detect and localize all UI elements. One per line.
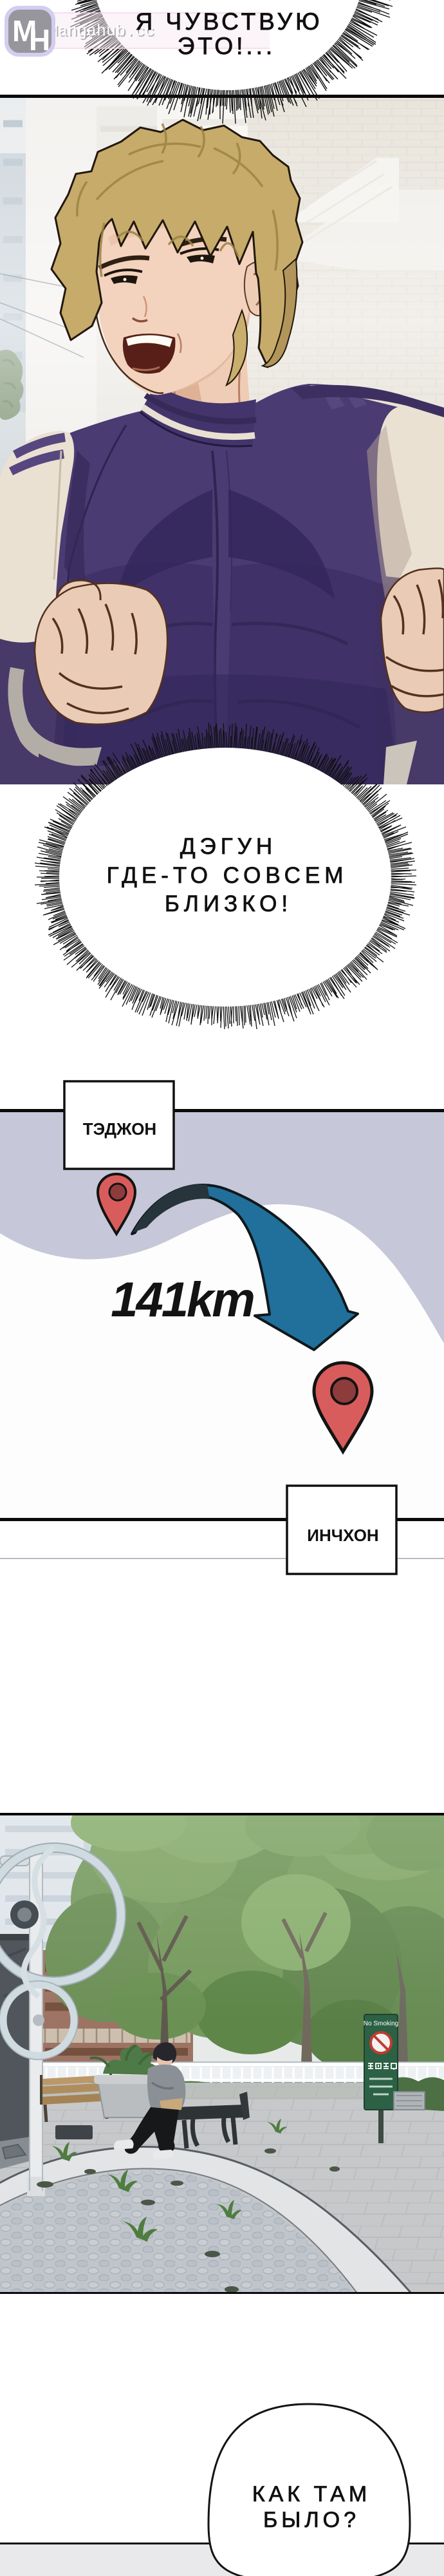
svg-text:БЛИЗКО!: БЛИЗКО! bbox=[165, 891, 292, 916]
svg-text:БЫЛО?: БЫЛО? bbox=[263, 2508, 360, 2532]
svg-text:КАК ТАМ: КАК ТАМ bbox=[252, 2482, 371, 2506]
svg-text:ЭТО!...: ЭТО!... bbox=[178, 33, 275, 59]
svg-text:ДЭГУН: ДЭГУН bbox=[180, 834, 277, 859]
svg-text:ГДЕ-ТО СОВСЕМ: ГДЕ-ТО СОВСЕМ bbox=[107, 863, 348, 888]
svg-text:H: H bbox=[29, 23, 50, 57]
svg-text:Я ЧУВСТВУЮ: Я ЧУВСТВУЮ bbox=[135, 8, 322, 35]
svg-text:141km: 141km bbox=[111, 1273, 254, 1327]
svg-text:ТЭДЖОН: ТЭДЖОН bbox=[83, 1119, 156, 1139]
svg-text:No Smoking: No Smoking bbox=[364, 2020, 398, 2027]
svg-text:ИНЧХОН: ИНЧХОН bbox=[307, 1526, 378, 1545]
